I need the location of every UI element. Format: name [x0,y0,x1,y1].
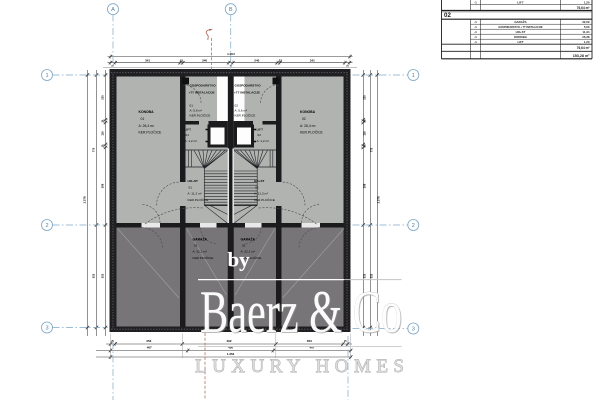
svg-text:KONOBA: KONOBA [139,110,155,114]
svg-text:GOSPODARSTVO: GOSPODARSTVO [190,84,217,88]
svg-text:-1: -1 [474,40,477,44]
svg-text:525: 525 [370,273,374,278]
svg-text:KONOBA: KONOBA [514,35,528,39]
svg-text:5,63: 5,63 [584,25,590,29]
svg-text:A: 1,2 m²: A: 1,2 m² [257,139,270,143]
svg-text:341: 341 [310,59,315,63]
svg-text:A: 1,2 m²: A: 1,2 m² [185,139,198,143]
svg-text:KER.PLOČICE: KER.PLOČICE [235,113,256,118]
svg-text:1,20: 1,20 [584,40,590,44]
svg-text:2: 2 [412,223,415,229]
svg-text:116: 116 [100,131,104,136]
svg-text:1: 1 [45,73,48,79]
svg-text:153,28 m²: 153,28 m² [573,54,591,58]
svg-text:Baerz & Co: Baerz & Co [200,279,402,345]
svg-text:KER.PLOČICE: KER.PLOČICE [188,197,209,202]
svg-text:GARAŽA: GARAŽA [514,19,527,24]
svg-text:116: 116 [363,131,367,136]
svg-text:KER.PLOČICE: KER.PLOČICE [193,255,214,260]
svg-text:KONOBA: KONOBA [300,110,316,114]
svg-text:01: 01 [194,244,198,248]
svg-text:240: 240 [202,59,207,63]
svg-text:407: 407 [147,346,152,350]
svg-text:1.378: 1.378 [82,196,86,204]
svg-text:LIFT: LIFT [185,128,192,132]
svg-text:76,64 m²: 76,64 m² [577,6,590,10]
svg-text:76,64 m²: 76,64 m² [577,46,590,50]
svg-text:353: 353 [146,339,151,343]
svg-text:02: 02 [302,117,306,121]
svg-text:02: 02 [258,133,262,137]
svg-text:GARAŽA: GARAŽA [241,237,256,242]
svg-text:399: 399 [363,183,367,188]
svg-text:A: 5,6 m²: A: 5,6 m² [235,109,248,113]
svg-text:32,09: 32,09 [582,20,590,24]
svg-text:399: 399 [100,183,104,188]
svg-text:HO+ST: HO+ST [254,179,265,183]
svg-text:25: 25 [346,66,349,68]
svg-text:-1: -1 [474,30,477,34]
svg-text:LIFT: LIFT [257,128,264,132]
svg-text:02: 02 [255,186,259,190]
svg-text:HO+ST: HO+ST [516,30,526,34]
svg-text:775: 775 [370,147,374,152]
svg-text:KER.PLOČICE: KER.PLOČICE [254,197,275,202]
svg-text:2: 2 [45,223,48,229]
svg-text:525: 525 [91,273,95,278]
svg-text:26,38: 26,38 [582,35,590,39]
svg-text:15: 15 [279,59,283,63]
svg-text:-1: -1 [474,20,477,24]
svg-text:-1: -1 [474,35,477,39]
svg-text:KER.PLOČICE: KER.PLOČICE [300,130,324,135]
svg-text:525: 525 [100,273,104,278]
svg-text:by: by [228,248,251,272]
svg-text:LUXURY HOMES: LUXURY HOMES [195,356,404,377]
svg-text:3: 3 [412,327,415,333]
svg-text:A: A [111,7,115,13]
svg-text:A: 32,1 m²: A: 32,1 m² [193,250,207,254]
svg-text:1,20: 1,20 [584,0,590,4]
svg-text:-1: -1 [474,0,477,4]
svg-text:235: 235 [363,95,367,100]
svg-text:+TT INSTALACIJE: +TT INSTALACIJE [234,91,260,95]
svg-text:11,34: 11,34 [582,30,589,34]
svg-text:KER.PLOČICE: KER.PLOČICE [139,130,163,135]
svg-text:A: 11,3 m²: A: 11,3 m² [188,192,202,196]
svg-text:LIFT: LIFT [517,40,523,44]
svg-text:A: 26,4 m²: A: 26,4 m² [300,124,317,128]
svg-text:235: 235 [100,95,104,100]
svg-text:01: 01 [189,186,193,190]
svg-text:GARAŽA: GARAŽA [193,237,208,242]
svg-text:525: 525 [363,273,367,278]
svg-text:B: B [229,7,233,13]
svg-text:1: 1 [412,73,415,79]
svg-text:01: 01 [186,133,190,137]
svg-text:A: 26,4 m²: A: 26,4 m² [139,124,156,128]
svg-text:341: 341 [145,59,150,63]
svg-text:LIFT: LIFT [517,0,524,4]
svg-text:+TT INSTALACIJE: +TT INSTALACIJE [189,91,215,95]
svg-text:3: 3 [45,326,48,332]
svg-text:01: 01 [141,117,145,121]
svg-text:A: 11,3 m²: A: 11,3 m² [254,192,268,196]
svg-text:-1: -1 [474,25,477,29]
svg-text:GOSPODARSTVO: GOSPODARSTVO [235,84,262,88]
svg-text:01: 01 [190,104,194,108]
svg-text:HO+ST: HO+ST [188,179,199,183]
svg-text:15: 15 [180,59,184,63]
svg-text:02: 02 [444,12,451,19]
svg-text:KER.PLOČICE: KER.PLOČICE [190,113,211,118]
svg-text:1.378: 1.378 [377,196,381,204]
svg-text:A: 5,6 m²: A: 5,6 m² [190,109,203,113]
svg-text:240: 240 [254,59,259,63]
svg-text:02: 02 [235,104,239,108]
svg-text:GOSPODARSTVO + TT INSTALACIJE: GOSPODARSTVO + TT INSTALACIJE [498,26,543,29]
svg-text:775: 775 [91,147,95,152]
